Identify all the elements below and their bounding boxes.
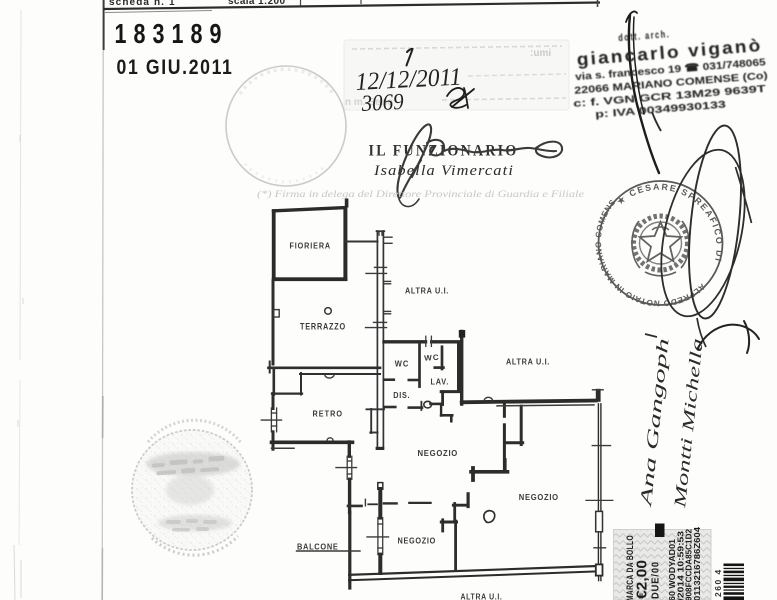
svg-text:BALCONE: BALCONE xyxy=(297,541,339,551)
svg-text:ALTRA U.I.: ALTRA U.I. xyxy=(461,592,503,600)
svg-text:RETRO: RETRO xyxy=(313,408,344,418)
svg-text:0113216786Z604: 0113216786Z604 xyxy=(692,527,702,600)
svg-text:scala 1:200: scala 1:200 xyxy=(228,0,286,7)
svg-text:WC: WC xyxy=(395,359,410,368)
svg-text:ALTRA U.I.: ALTRA U.I. xyxy=(506,357,550,367)
svg-text:260 4: 260 4 xyxy=(713,568,723,597)
svg-text:NEGOZIO: NEGOZIO xyxy=(519,492,559,502)
svg-text:Isabella Vimercati: Isabella Vimercati xyxy=(373,163,514,179)
svg-text:3069: 3069 xyxy=(360,89,405,116)
svg-text:183189: 183189 xyxy=(115,18,229,49)
svg-text:LAV.: LAV. xyxy=(431,377,450,386)
svg-text:01 GIU.2011: 01 GIU.2011 xyxy=(117,55,234,79)
svg-text:MARCA DA BOLLO: MARCA DA BOLLO xyxy=(625,535,635,600)
svg-text:NEGOZIO: NEGOZIO xyxy=(418,448,459,458)
svg-text:(*) Firma in delega del Dirett: (*) Firma in delega del Direttore Provin… xyxy=(257,189,584,199)
svg-text:WC: WC xyxy=(424,353,440,363)
svg-text:TERRAZZO: TERRAZZO xyxy=(300,322,346,332)
svg-text:NEGOZIO: NEGOZIO xyxy=(398,535,437,545)
svg-text:Ana Gangoph: Ana Gangoph xyxy=(636,337,673,508)
svg-text:FIORIERA: FIORIERA xyxy=(290,242,332,251)
svg-text:ALTRA U.I.: ALTRA U.I. xyxy=(405,286,449,296)
svg-text:DIS.: DIS. xyxy=(393,391,410,400)
svg-text:Montti Michella: Montti Michella xyxy=(670,337,707,510)
svg-text:€2,00: €2,00 xyxy=(635,560,651,599)
svg-text:scheda n. 1: scheda n. 1 xyxy=(109,0,176,8)
svg-text::umi: :umi xyxy=(530,48,551,59)
svg-text:DUE/00: DUE/00 xyxy=(651,561,662,599)
